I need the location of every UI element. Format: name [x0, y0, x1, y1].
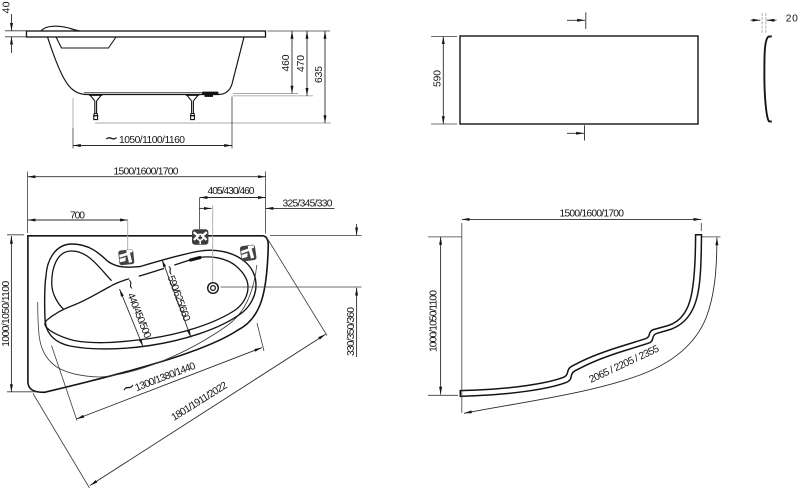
svg-text:1500/1600/1700: 1500/1600/1700: [560, 209, 625, 220]
svg-text:590: 590: [433, 70, 444, 87]
svg-text:635: 635: [314, 66, 325, 83]
svg-text:20: 20: [786, 13, 798, 24]
svg-text:1000/1050/1100: 1000/1050/1100: [428, 290, 439, 352]
svg-text:∼: ∼: [105, 130, 119, 148]
svg-text:325/345/330: 325/345/330: [283, 198, 333, 209]
svg-text:1050/1100/1160: 1050/1100/1160: [119, 135, 185, 146]
svg-text:1000/1050/1100: 1000/1050/1100: [1, 281, 12, 347]
svg-text:460: 460: [281, 54, 292, 71]
svg-text:470: 470: [296, 55, 307, 72]
svg-text:1500/1600/1700: 1500/1600/1700: [114, 167, 179, 178]
svg-text:330/350/360: 330/350/360: [346, 307, 357, 356]
svg-text:40: 40: [2, 1, 13, 13]
svg-text:700: 700: [70, 210, 85, 221]
svg-text:405/430/460: 405/430/460: [208, 186, 255, 197]
